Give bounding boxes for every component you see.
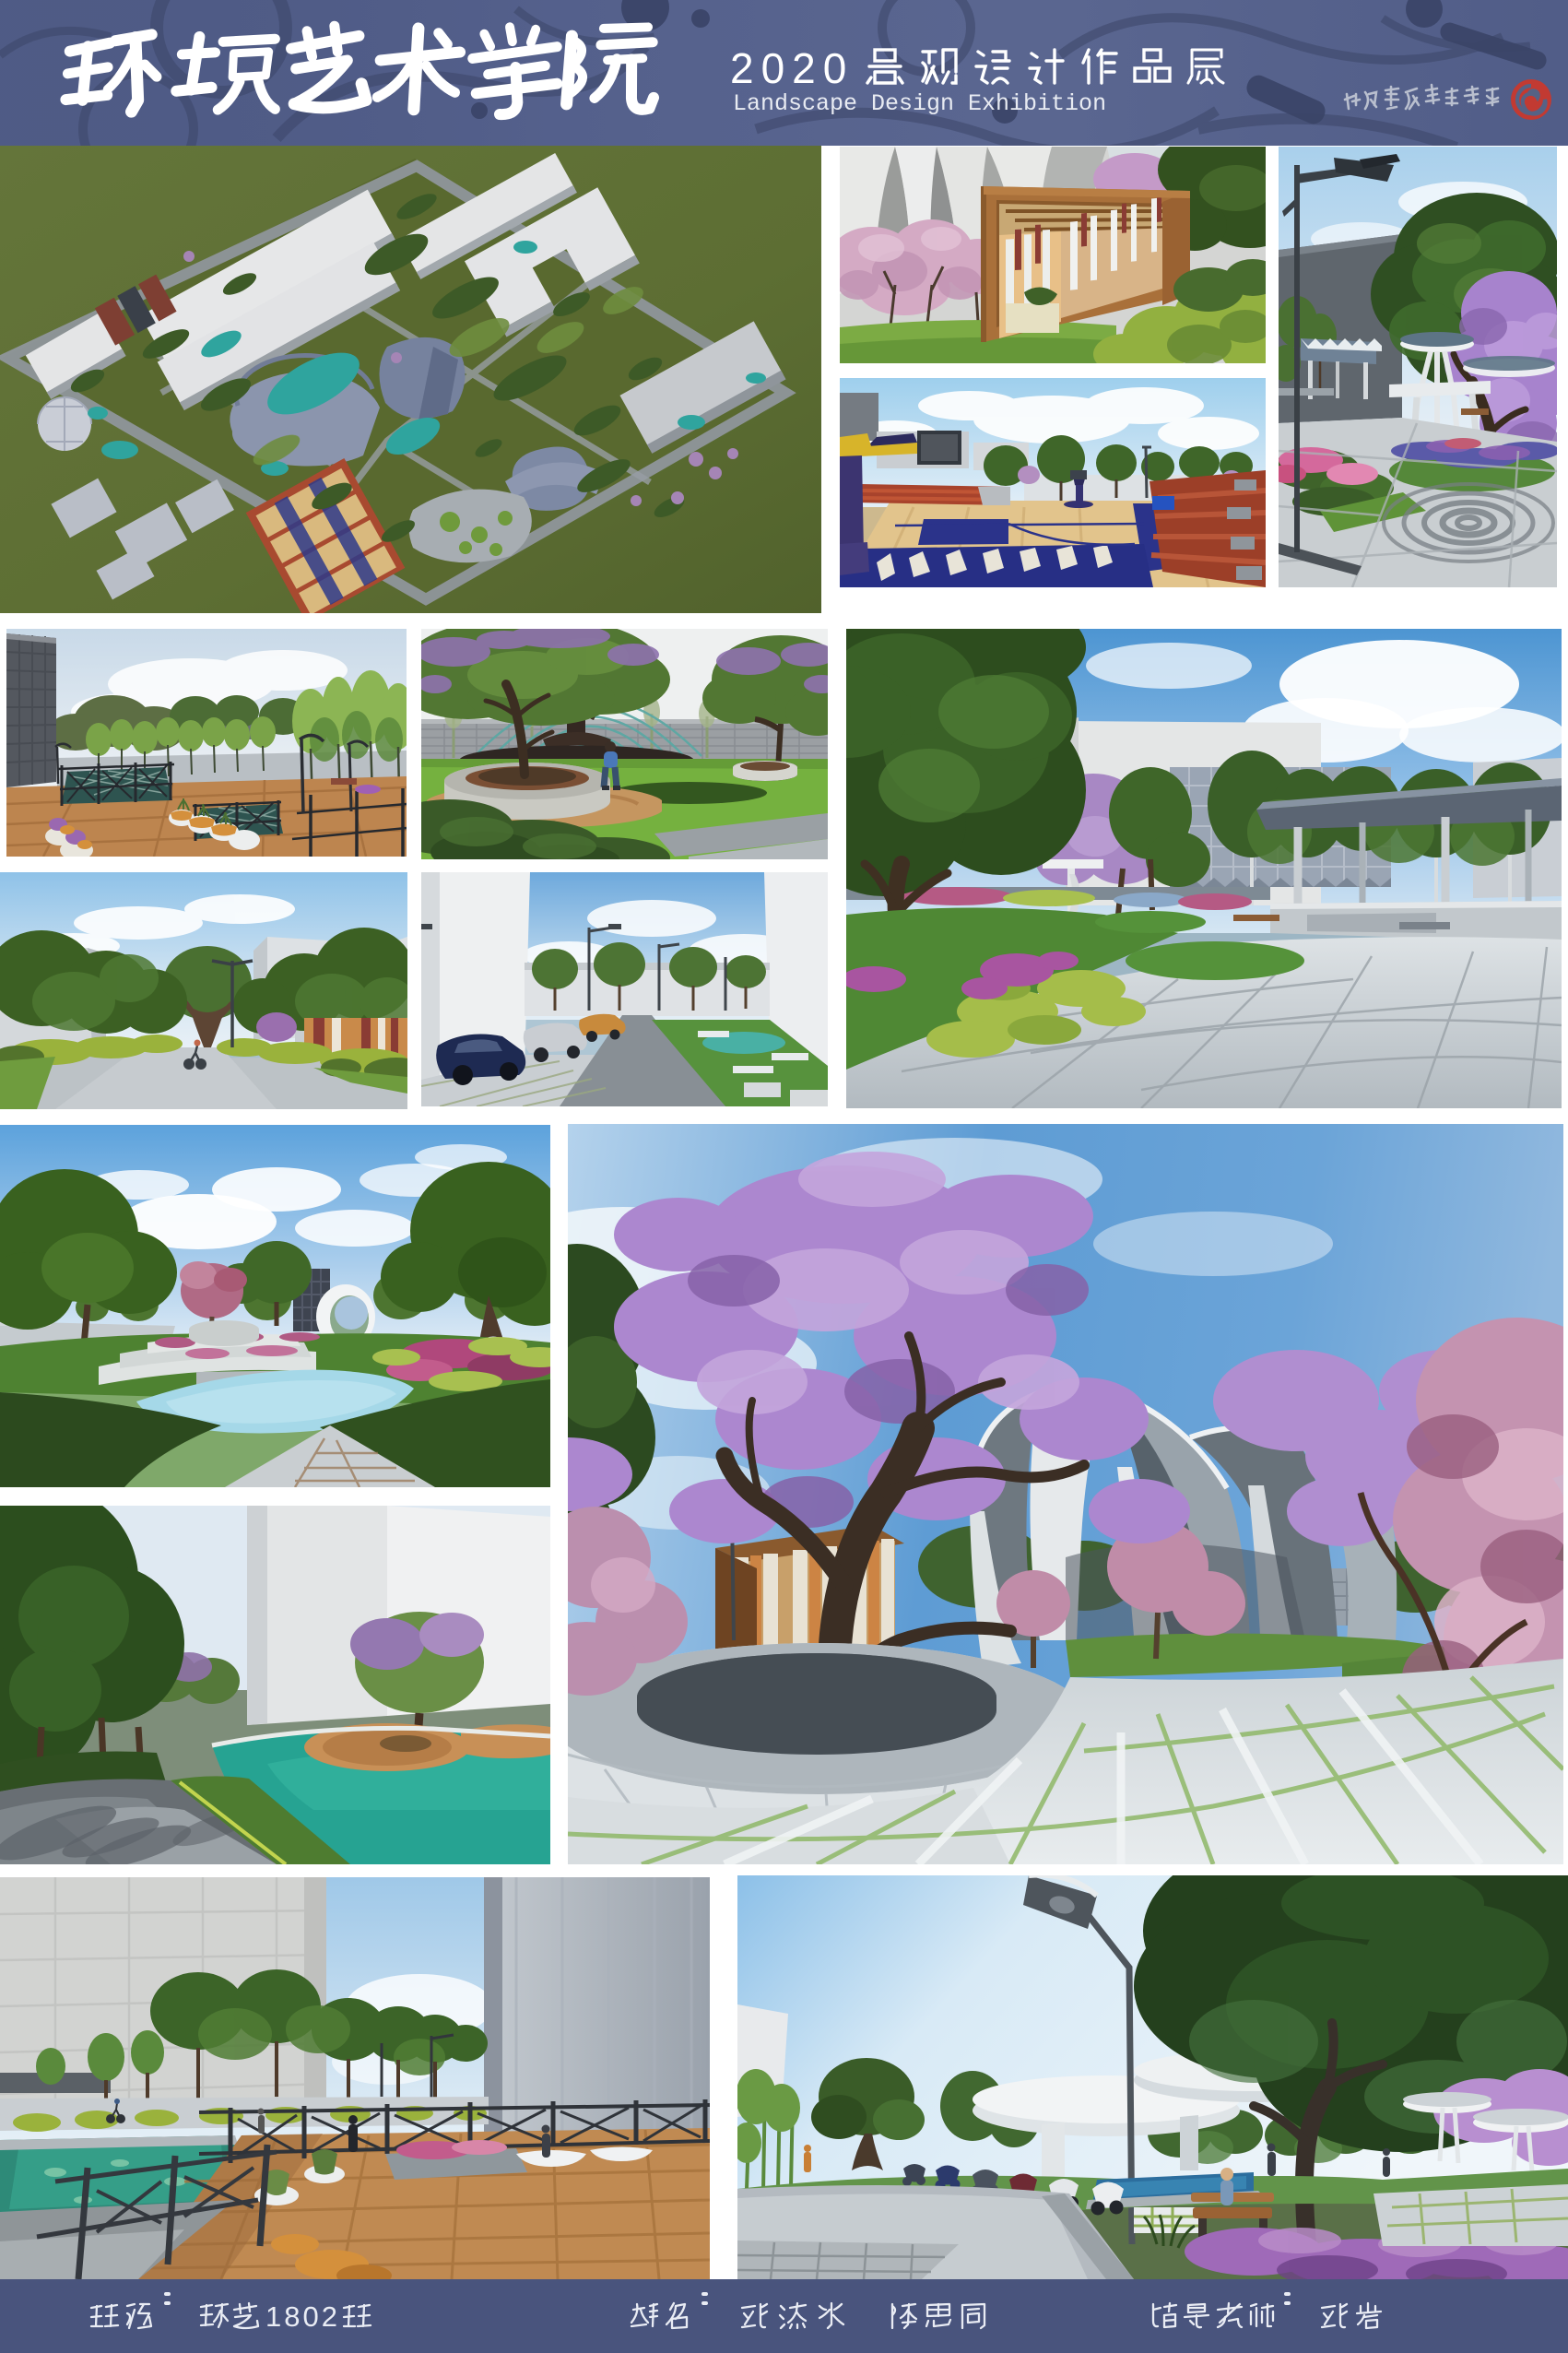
- svg-text:Landscape Design Exhibition: Landscape Design Exhibition: [733, 90, 1106, 117]
- svg-text:2020: 2020: [730, 44, 854, 92]
- svg-text:1802: 1802: [265, 2300, 340, 2333]
